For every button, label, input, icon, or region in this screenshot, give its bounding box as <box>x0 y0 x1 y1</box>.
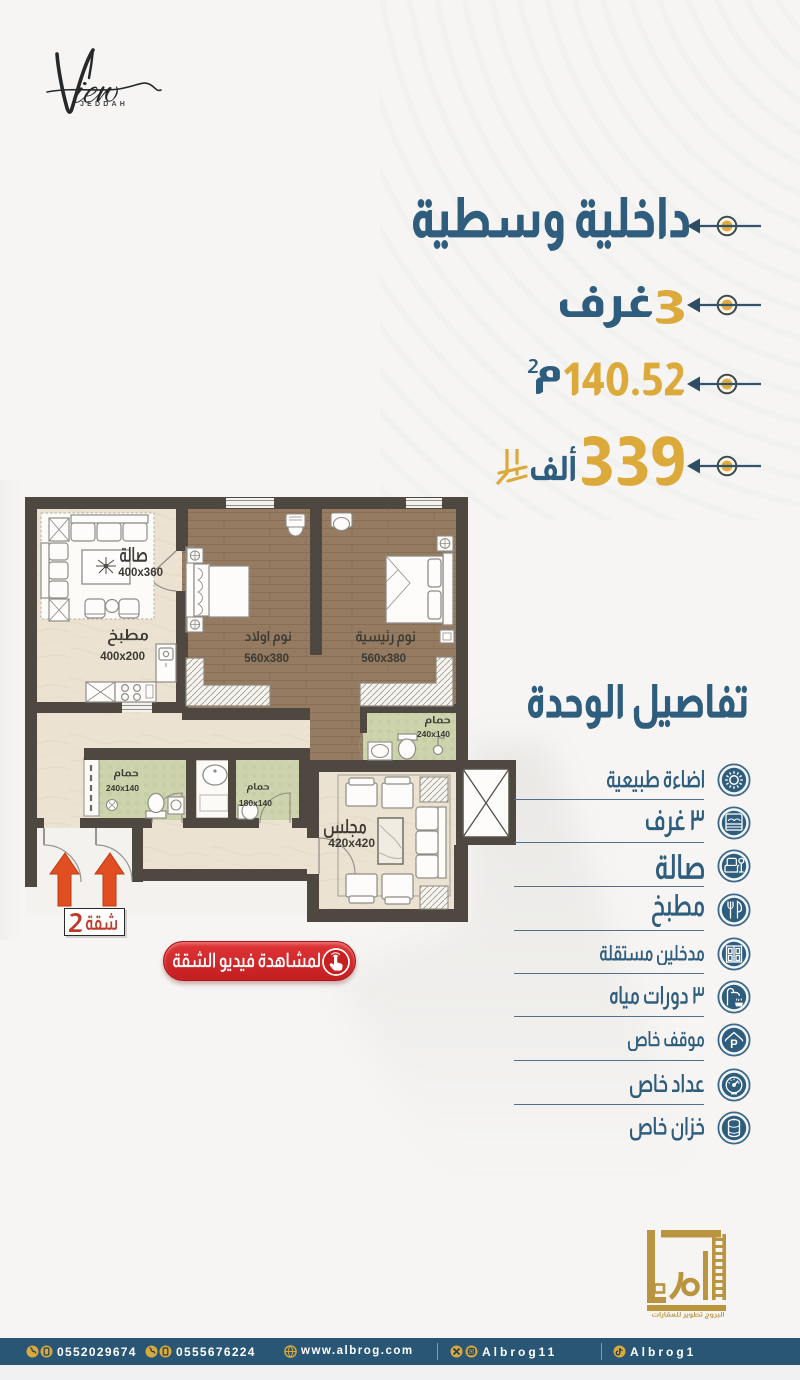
svg-text:400x360: 400x360 <box>118 567 163 579</box>
svg-text:400x200: 400x200 <box>100 651 145 663</box>
svg-text:P: P <box>730 1039 738 1051</box>
svg-text:560x380: 560x380 <box>244 653 289 665</box>
svg-text:240x140: 240x140 <box>106 783 139 793</box>
svg-text:180x140: 180x140 <box>239 798 272 808</box>
svg-text:560x380: 560x380 <box>361 653 406 665</box>
svg-text:240x140: 240x140 <box>417 729 450 739</box>
svg-text:420x420: 420x420 <box>328 836 375 850</box>
